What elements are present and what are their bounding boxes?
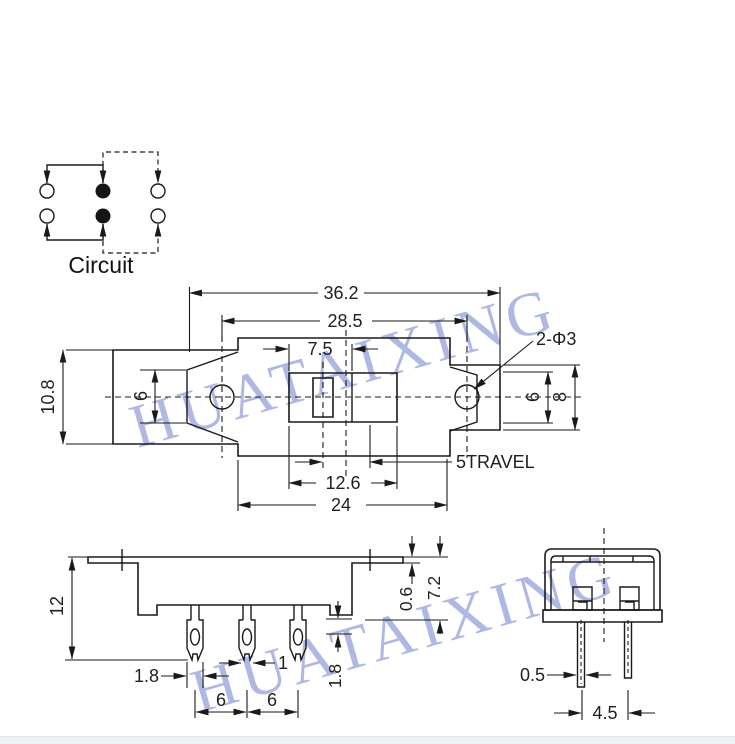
technical-drawing: HUATAIXING HUATAIXING Circuit xyxy=(0,0,735,744)
circuit-terminal-open xyxy=(151,184,165,198)
dim-knob-slot: 7.5 xyxy=(307,339,332,359)
dim-terminal-neck-width: 1 xyxy=(278,653,288,673)
terminal-necks xyxy=(191,605,302,620)
footer-strip xyxy=(0,737,735,744)
circuit-terminal-open xyxy=(151,209,165,223)
circuit-terminal-common xyxy=(96,209,111,224)
terminal-center xyxy=(239,620,255,660)
dim-pitch-left: 6 xyxy=(216,690,226,710)
dim-pin-thickness: 0.5 xyxy=(520,665,545,685)
dim-height: 12 xyxy=(47,596,67,616)
circuit-solid-link-top xyxy=(47,165,103,183)
dim-left-inner: 6 xyxy=(131,391,151,401)
top-view-right-bend-lines xyxy=(450,367,477,431)
dim-pin-spacing: 4.5 xyxy=(592,703,617,723)
dim-terminal-tip-width: 1.8 xyxy=(134,666,159,686)
circuit-dashed-link-top xyxy=(103,152,158,183)
dim-step: 1.8 xyxy=(325,664,345,688)
circuit-terminal-open xyxy=(40,184,54,198)
circuit-terminal-open xyxy=(40,209,54,223)
drawing-sheet: HUATAIXING HUATAIXING Circuit xyxy=(0,0,735,744)
dim-opening-width: 12.6 xyxy=(325,473,360,493)
circuit-terminal-common xyxy=(96,184,111,199)
label-holes: 2-Φ3 xyxy=(536,329,576,349)
dim-pitch-right: 6 xyxy=(267,690,277,710)
dim-flange-thickness: 0.6 xyxy=(396,587,416,611)
front-view-outline xyxy=(88,557,403,615)
dim-right-inner: 6 xyxy=(523,392,543,402)
circuit-diagram: Circuit xyxy=(40,152,165,278)
circuit-caption: Circuit xyxy=(68,252,134,278)
dim-hole-spacing: 28.5 xyxy=(327,311,362,331)
front-view-ear-ticks xyxy=(122,549,370,571)
circuit-solid-link-bottom xyxy=(47,224,103,240)
terminal-left xyxy=(187,620,203,660)
terminal-hole-left xyxy=(191,629,200,645)
label-travel: 5TRAVEL xyxy=(456,452,535,472)
footer-bar xyxy=(0,737,735,744)
watermark-text-bottom: HUATAIXING xyxy=(184,540,626,727)
dim-body-width: 24 xyxy=(331,495,351,515)
circuit-dashed-link-bottom xyxy=(103,224,158,253)
dim-overall-width: 36.2 xyxy=(323,283,358,303)
dim-left-end-height: 10.8 xyxy=(38,379,58,414)
dim-right-end-height: 8 xyxy=(550,392,570,402)
dim-body-height: 7.2 xyxy=(424,576,444,600)
